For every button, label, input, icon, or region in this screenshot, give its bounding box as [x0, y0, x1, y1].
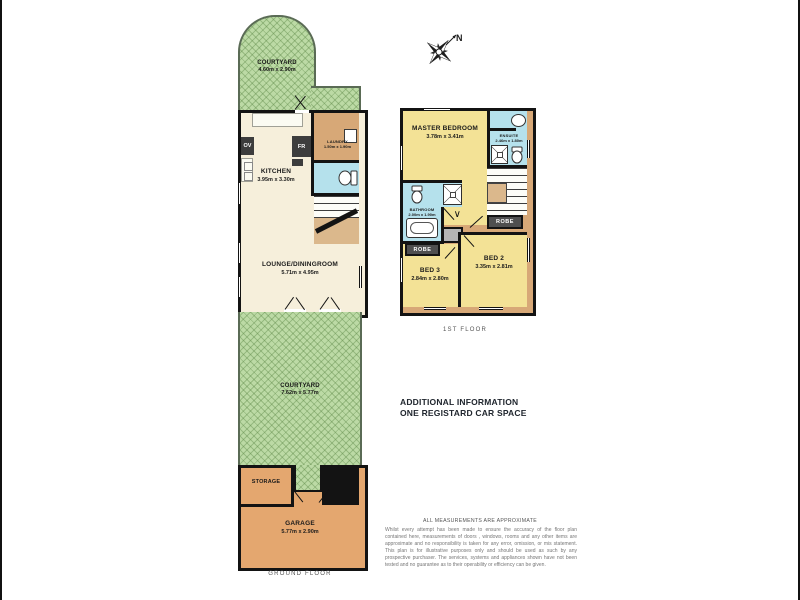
fridge-icon: FR [292, 136, 311, 157]
ground-building: OV FR KITCHEN 3.95m x 3.30m LAUNDRY 1.50… [238, 110, 368, 318]
first-floor-building: MASTER BEDROOM 3.78m x 3.41m ENSUITE 2.4… [400, 108, 536, 316]
master-bedroom-label: MASTER BEDROOM 3.78m x 3.41m [407, 125, 483, 141]
storage-label: STORAGE [243, 479, 289, 486]
courtyard-notch [294, 465, 322, 492]
kitchen-counter [252, 113, 303, 127]
first-floor-label: 1ST FLOOR [435, 327, 495, 333]
window-opening [479, 307, 503, 310]
ensuite-label: ENSUITE 2.46m x 1.80m [491, 133, 527, 144]
bathroom-label: BATHROOM 2.00m x 1.90m [403, 207, 441, 218]
courtyard-top-label: COURTYARD 4.60m x 2.90m [240, 59, 314, 75]
window-opening [527, 140, 530, 158]
window-opening [424, 108, 450, 111]
courtyard-main: COURTYARD 7.62m x 5.77m [238, 312, 362, 465]
garage-label: GARAGE 5.77m x 2.90m [261, 520, 339, 536]
additional-info: ADDITIONAL INFORMATION ONE REGISTARD CAR… [400, 397, 527, 418]
window-opening [238, 277, 241, 297]
enclosed-store [322, 468, 359, 505]
chevron-icon: ∨ [454, 210, 461, 220]
measurements-title: ALL MEASUREMENTS ARE APPROXIMATE [385, 518, 575, 524]
courtyard-top: COURTYARD 4.60m x 2.90m [238, 15, 316, 114]
toilet-icon [509, 146, 525, 164]
wall [241, 504, 294, 507]
window-opening [359, 266, 362, 288]
stair-landing [487, 183, 507, 203]
left-edge-border [0, 0, 2, 600]
garage-building: STORAGE GARAGE 5.77m x 2.90m [238, 465, 368, 571]
robe-hall: ROBE [487, 215, 523, 229]
bed2-label: BED 2 3.35m x 2.81m [463, 255, 525, 271]
kitchen-label: KITCHEN 3.95m x 3.30m [243, 168, 309, 184]
lounge-label: LOUNGE/DININGROOM 5.71m x 4.95m [260, 261, 340, 277]
toilet-icon [338, 167, 358, 189]
window-opening [424, 307, 446, 310]
floor-plan-page: { "compass": { "north_label": "N" }, "gl… [0, 0, 800, 600]
disclaimer-text: Whilst every attempt has been made to en… [385, 527, 577, 569]
basin-icon [511, 114, 526, 127]
bed3-label: BED 3 2.84m x 2.80m [405, 267, 455, 283]
cupboard-icon [292, 159, 303, 166]
wall [441, 207, 444, 241]
door-opening [295, 110, 309, 113]
shower-icon [491, 145, 508, 164]
window-opening [527, 238, 530, 262]
additional-info-line2: ONE REGISTARD CAR SPACE [400, 408, 527, 419]
wall [490, 128, 516, 131]
compass-icon: N [418, 28, 466, 72]
bathtub-icon [406, 218, 438, 238]
additional-info-line1: ADDITIONAL INFORMATION [400, 397, 527, 408]
window-opening [238, 183, 241, 204]
toilet-icon [408, 185, 426, 204]
window-opening [238, 243, 241, 263]
ground-floor-label: GROUND FLOOR [260, 571, 340, 577]
window-opening [400, 146, 403, 170]
compass-north-letter: N [456, 33, 463, 43]
oven-icon: OV [241, 137, 254, 155]
courtyard-main-label: COURTYARD 7.62m x 5.77m [240, 382, 360, 398]
wc-room [314, 163, 359, 193]
shower-icon [443, 184, 462, 205]
laundry-label: LAUNDRY 1.50m x 1.90m [317, 139, 358, 150]
window-opening [400, 258, 403, 282]
robe-bed3: ROBE [405, 243, 440, 256]
